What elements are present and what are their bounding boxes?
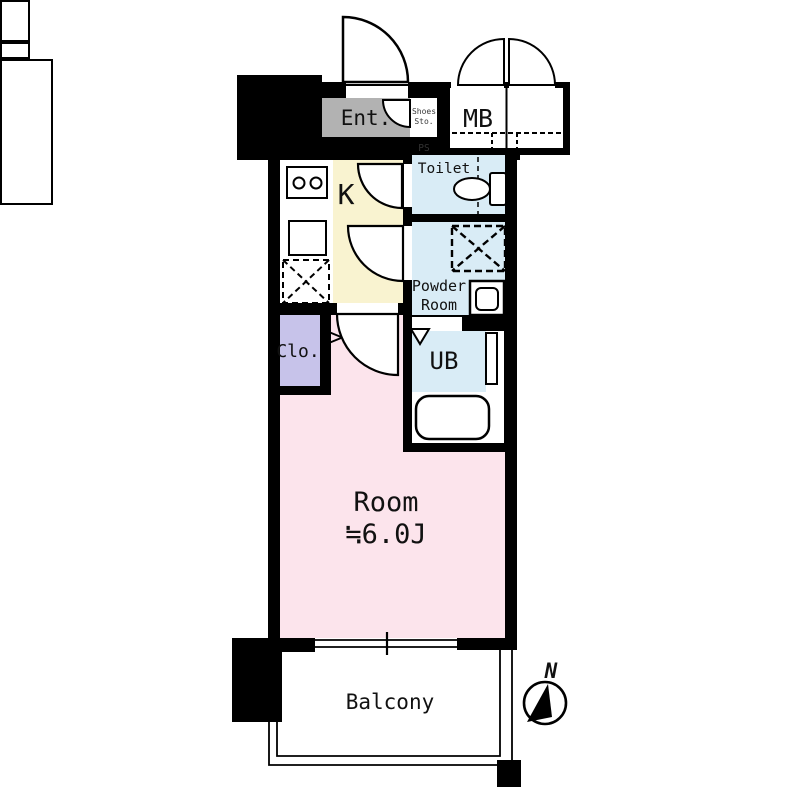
meter-box-door-opening (509, 82, 555, 88)
meter-box-door-opening (451, 82, 504, 88)
stove-icon (287, 167, 327, 198)
wall (237, 75, 322, 160)
window-strip (315, 638, 457, 650)
bathtub-area (412, 392, 504, 443)
unit-bath-label: UB (418, 342, 470, 380)
meter-box-door-arcs (458, 39, 555, 85)
wall (318, 82, 346, 98)
compass-icon (524, 682, 566, 724)
floor-plan: Ent. Shoes Sto. PS MB K Toilet Powder Ro… (0, 0, 800, 800)
entrance-opening (346, 84, 408, 98)
pipe-space-box (0, 42, 30, 59)
refrigerator-space-icon (283, 260, 329, 303)
toilet-label: Toilet (412, 160, 476, 178)
shoes-storage-box (0, 0, 30, 42)
room-label: Room ≒6.0J (296, 486, 476, 552)
closet-label: Clo. (272, 339, 324, 363)
meter-box-label: MB (452, 92, 504, 144)
unit-bath-side (486, 331, 504, 392)
unit-bath-doorway (412, 317, 462, 331)
kitchen-label: K (328, 172, 364, 216)
kitchen-counter (0, 59, 53, 205)
balcony-label: Balcony (316, 687, 464, 717)
wall (268, 155, 280, 638)
toilet-door-opening (404, 164, 412, 207)
powder-room-label: Powder Room (404, 274, 474, 318)
room-door-opening (337, 303, 398, 315)
structural-column (497, 760, 521, 787)
pipe-space-label: PS (409, 140, 439, 157)
wall (268, 386, 331, 395)
wall (403, 214, 507, 222)
kitchen-sink-icon (289, 221, 326, 255)
powder-door-opening (404, 226, 412, 280)
wall (457, 638, 517, 650)
shoes-storage-label: Shoes Sto. (409, 98, 439, 136)
room-floor (331, 315, 403, 638)
compass-north-label: N (534, 658, 568, 684)
entrance-door-arc (343, 17, 408, 82)
entrance-label: Ent. (322, 98, 410, 137)
